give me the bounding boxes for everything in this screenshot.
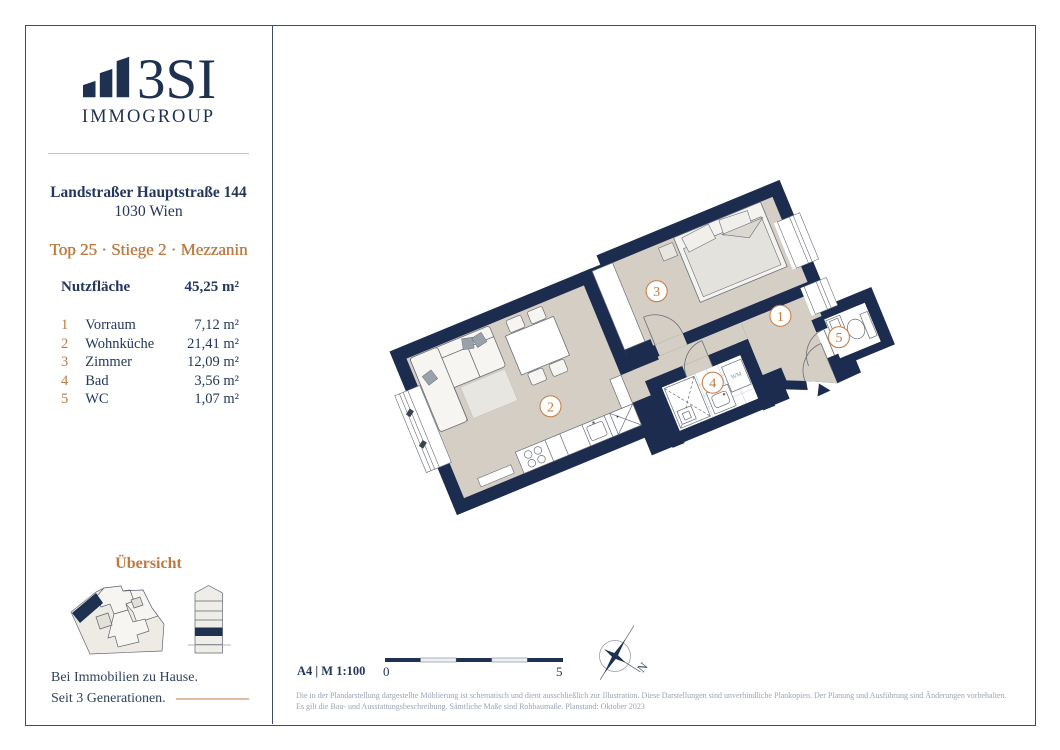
svg-text:4: 4: [709, 377, 716, 392]
svg-text:1: 1: [777, 310, 784, 325]
svg-text:N: N: [634, 659, 651, 675]
svg-text:2: 2: [547, 400, 554, 415]
svg-text:5: 5: [835, 331, 842, 346]
svg-text:3: 3: [653, 285, 660, 300]
